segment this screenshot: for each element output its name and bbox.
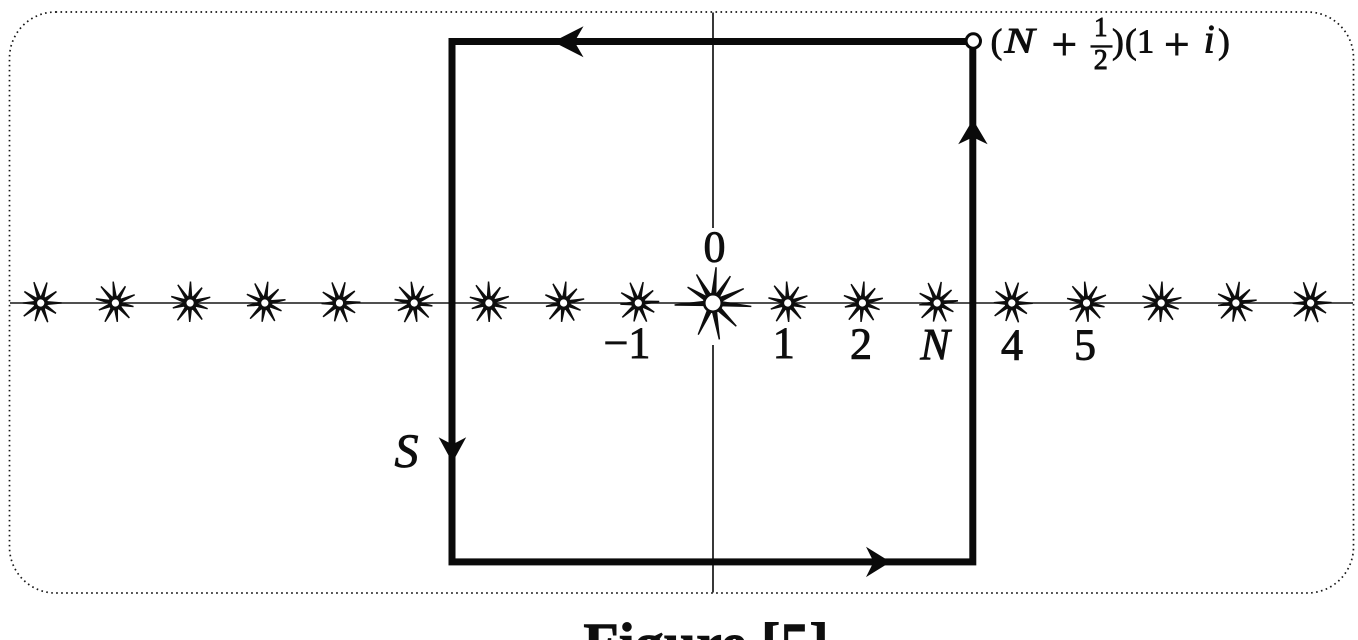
svg-text:4: 4 [1001, 321, 1023, 370]
svg-text:1: 1 [1094, 12, 1108, 42]
svg-text:(: ( [991, 22, 1003, 61]
svg-text:5: 5 [1074, 321, 1096, 370]
svg-text:−1: −1 [604, 319, 651, 368]
svg-text:): ) [1218, 22, 1230, 61]
svg-text:2: 2 [1094, 45, 1108, 76]
svg-text:+: + [1052, 20, 1077, 70]
svg-text:0: 0 [704, 222, 726, 271]
svg-text:Figure [5]: Figure [5] [583, 611, 828, 640]
svg-text:): ) [1112, 22, 1124, 61]
svg-text:N: N [919, 320, 952, 369]
svg-text:1: 1 [773, 319, 795, 368]
svg-text:S: S [395, 425, 419, 478]
svg-text:(: ( [1125, 22, 1137, 61]
svg-text:2: 2 [850, 319, 872, 368]
svg-text:N: N [1003, 21, 1037, 61]
svg-text:+: + [1164, 20, 1189, 70]
svg-text:i: i [1204, 17, 1215, 62]
svg-text:1: 1 [1137, 24, 1154, 61]
